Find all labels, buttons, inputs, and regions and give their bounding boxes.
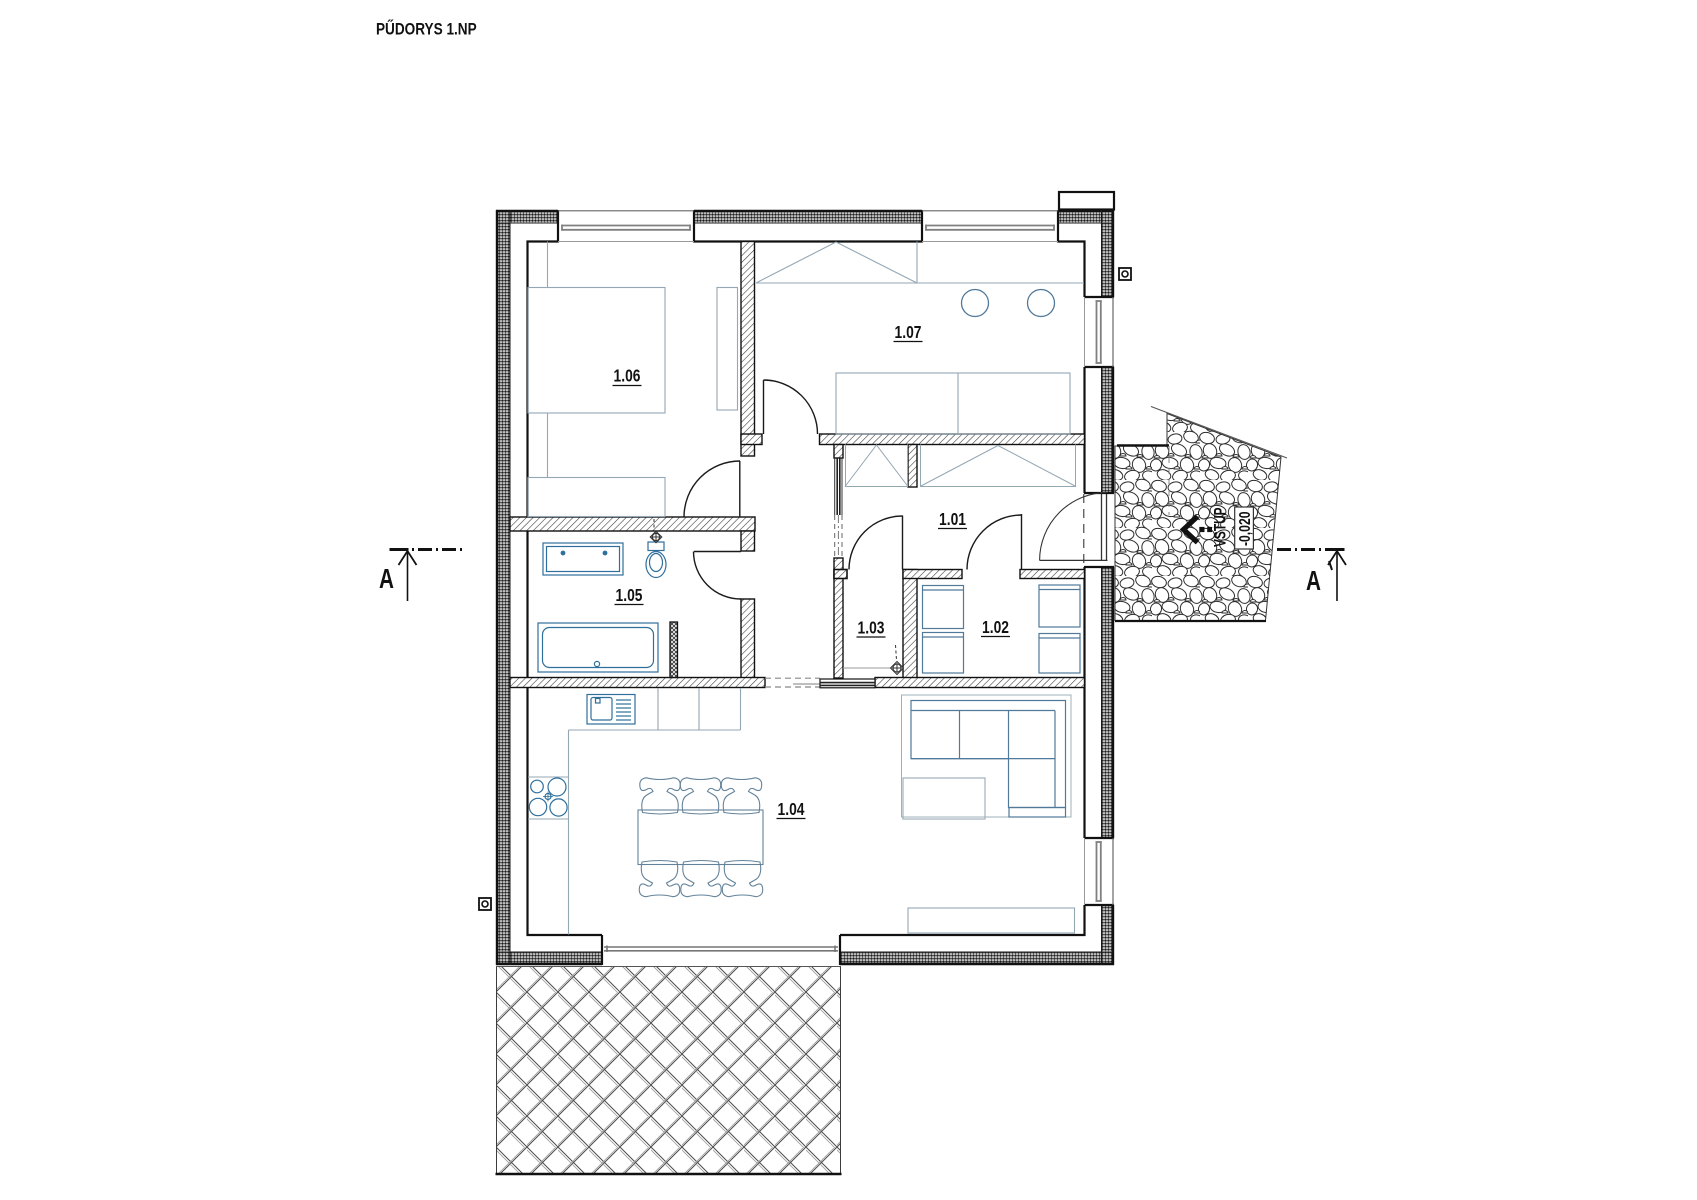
- svg-text:1.02: 1.02: [982, 619, 1009, 638]
- svg-text:A: A: [1306, 566, 1321, 597]
- svg-text:A: A: [379, 564, 394, 595]
- svg-text:PŰDORYS 1.NP: PŰDORYS 1.NP: [376, 19, 477, 39]
- svg-text:1.01: 1.01: [939, 511, 966, 530]
- svg-text:1.04: 1.04: [778, 801, 805, 820]
- svg-text:1.05: 1.05: [616, 587, 643, 606]
- svg-text:VSTUP: VSTUP: [1212, 507, 1230, 547]
- svg-text:1.03: 1.03: [858, 619, 885, 638]
- svg-text:-0,020: -0,020: [1236, 511, 1254, 546]
- svg-text:1.06: 1.06: [614, 367, 641, 386]
- svg-text:1.07: 1.07: [895, 324, 922, 343]
